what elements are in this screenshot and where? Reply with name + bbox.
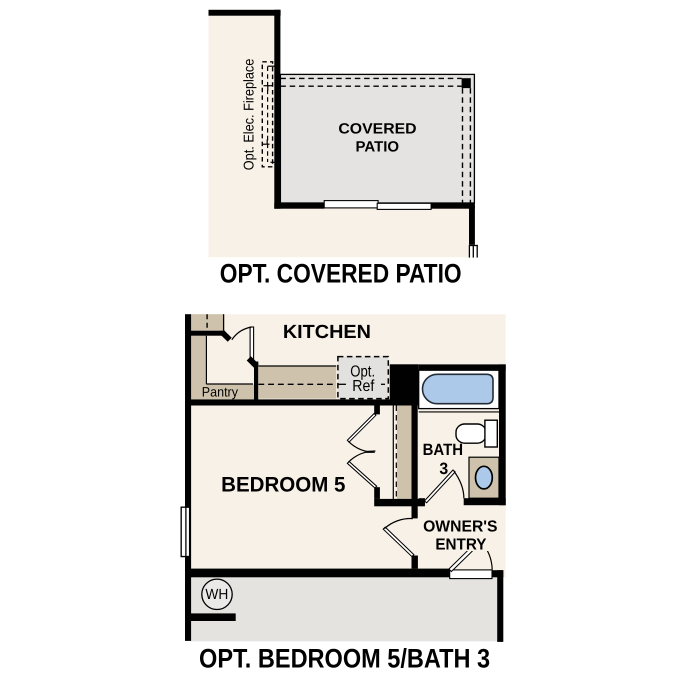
svg-text:Ref: Ref	[352, 378, 374, 395]
svg-text:KITCHEN: KITCHEN	[283, 322, 371, 343]
svg-text:OPT. BEDROOM 5/BATH 3: OPT. BEDROOM 5/BATH 3	[199, 644, 490, 674]
svg-text:OPT. COVERED PATIO: OPT. COVERED PATIO	[220, 258, 462, 288]
svg-text:3: 3	[439, 460, 448, 478]
svg-text:Pantry: Pantry	[202, 385, 238, 400]
svg-text:BEDROOM 5: BEDROOM 5	[221, 473, 346, 496]
svg-text:COVERED: COVERED	[338, 121, 416, 137]
svg-text:ENTRY: ENTRY	[435, 536, 486, 553]
svg-text:WH: WH	[205, 587, 228, 603]
svg-text:BATH: BATH	[423, 441, 463, 459]
svg-text:PATIO: PATIO	[356, 140, 400, 156]
svg-text:Opt. Elec. Fireplace: Opt. Elec. Fireplace	[241, 59, 257, 171]
svg-text:OWNER'S: OWNER'S	[423, 518, 498, 535]
